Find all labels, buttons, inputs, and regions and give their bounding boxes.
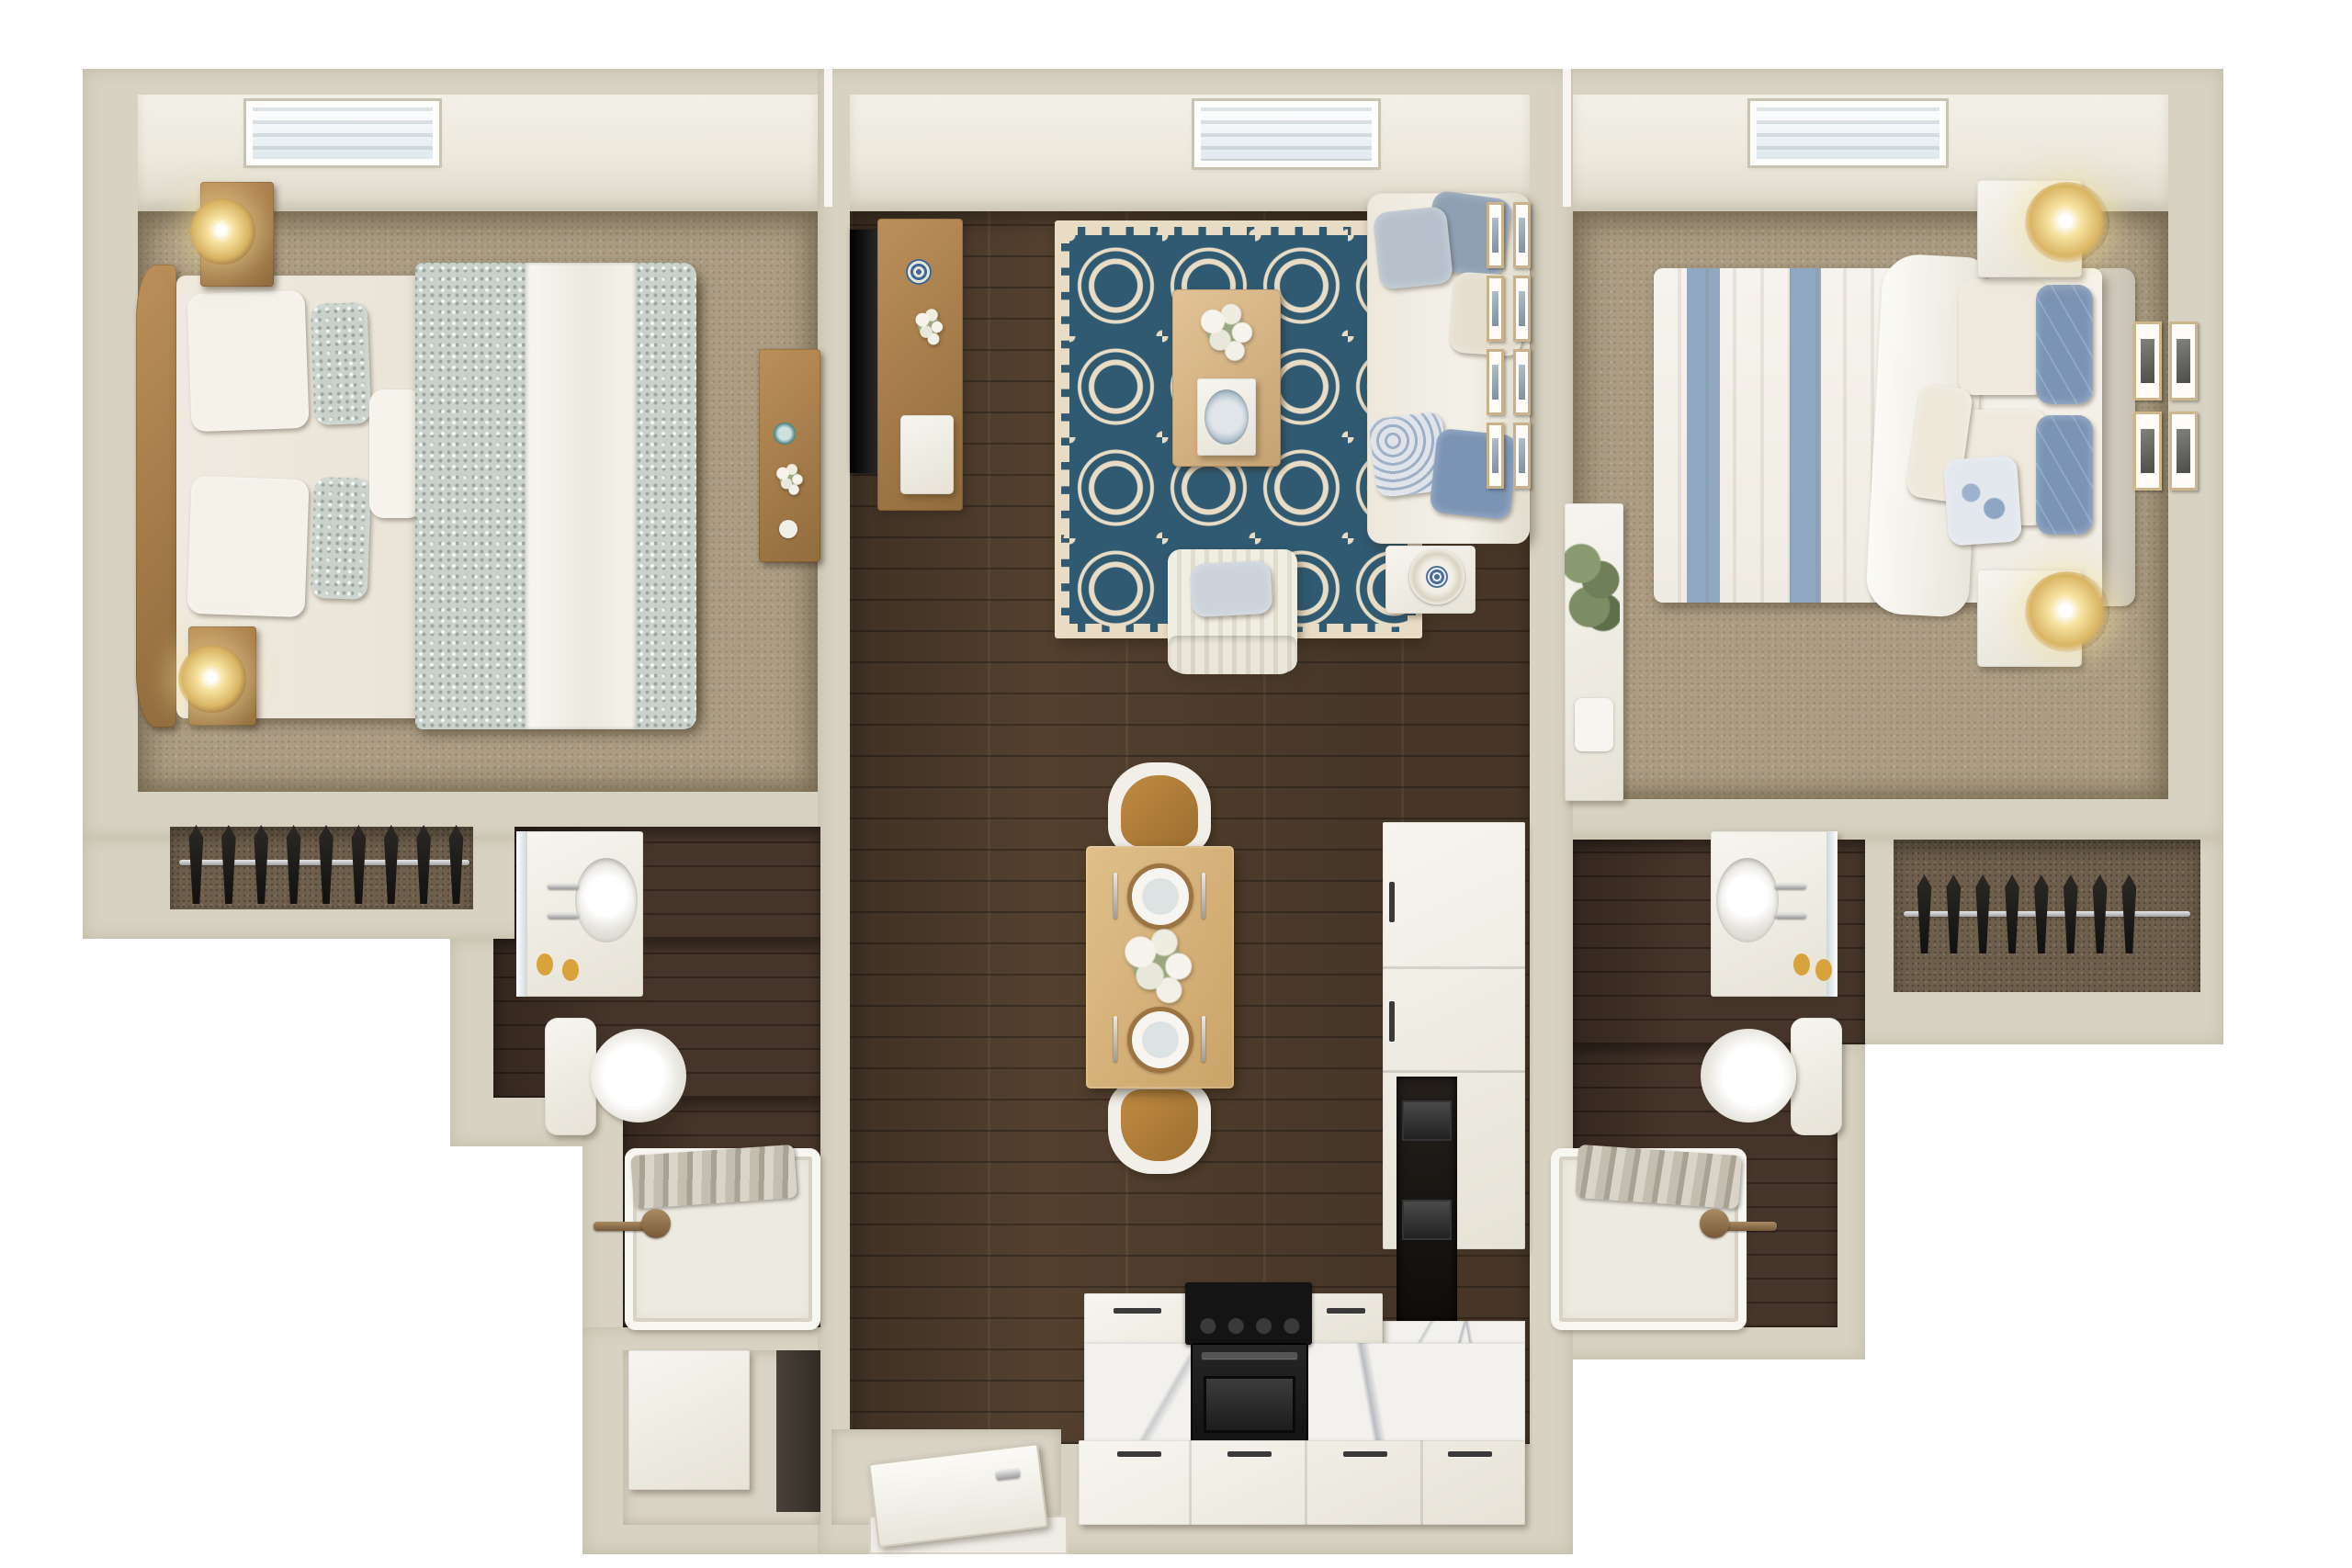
pillow-accent — [2036, 285, 2093, 404]
decor-tray — [900, 415, 954, 494]
dining-chair-seat — [1121, 775, 1198, 847]
pantry-seam — [1383, 966, 1525, 969]
decor-dish — [779, 520, 797, 538]
cabinet-handle-icon — [1389, 1001, 1395, 1042]
counter-seam — [1305, 1440, 1307, 1525]
headboard-left-bed — [136, 265, 176, 728]
headboard-right-bed — [2097, 268, 2135, 606]
toilet-bowl — [1701, 1029, 1796, 1122]
garment-icon — [188, 825, 204, 904]
sink-icon — [1716, 858, 1779, 942]
storage-cabinet — [628, 1350, 750, 1490]
garment-icon — [416, 825, 432, 904]
plant-icon — [1565, 531, 1620, 639]
tray-deco — [1426, 566, 1448, 588]
decor-vase — [774, 423, 796, 445]
picture-frame — [2169, 412, 2198, 491]
dining-centerpiece — [1112, 919, 1207, 1014]
lamp-icon — [189, 198, 255, 265]
tub-faucet-icon — [641, 1209, 671, 1238]
closet-left-garments — [188, 825, 464, 909]
section-gap-right — [1563, 69, 1571, 207]
pillow-floral — [1943, 455, 2022, 546]
plate-inner — [1142, 878, 1179, 915]
plate-inner — [1142, 1021, 1179, 1058]
faucet-icon — [1775, 913, 1806, 919]
decor-orb — [906, 259, 932, 285]
floor-plan-render — [0, 0, 2352, 1568]
picture-frame — [1487, 276, 1504, 342]
closet-right-garments — [1917, 874, 2137, 959]
picture-frame — [2133, 321, 2162, 400]
sink-icon — [575, 858, 638, 942]
soap-icon — [537, 953, 553, 976]
tray-plate — [1204, 389, 1249, 445]
garment-icon — [254, 825, 269, 904]
cabinet-handle-icon — [1327, 1308, 1365, 1314]
garment-icon — [1946, 874, 1962, 953]
oven-handle-icon — [1202, 1352, 1297, 1359]
picture-frame — [2169, 321, 2198, 400]
cabinet-handle-icon — [1227, 1451, 1272, 1457]
skylight-bedroom-left — [246, 101, 439, 165]
pillow-patterned — [311, 477, 372, 600]
cutlery-icon — [1202, 873, 1205, 919]
soap-icon — [1793, 953, 1810, 976]
soap-icon — [562, 959, 579, 981]
toilet-tank — [1791, 1018, 1842, 1135]
cabinet-handle-icon — [1389, 882, 1395, 922]
blanket-fold — [526, 263, 636, 729]
picture-frame — [1513, 423, 1531, 489]
living-gallery-frames — [1487, 202, 1531, 494]
garment-icon — [383, 825, 399, 904]
section-gap-left — [824, 69, 832, 207]
garment-icon — [319, 825, 334, 904]
oven-glass — [1402, 1100, 1452, 1141]
range-oven-window — [1204, 1376, 1295, 1433]
picture-frame — [1513, 349, 1531, 415]
desk-decor — [1575, 698, 1613, 751]
cabinet-handle-icon — [1114, 1308, 1161, 1314]
pillow-accent — [2036, 415, 2093, 535]
cabinet-handle-icon — [1343, 1451, 1387, 1457]
storage-doorway-shadow — [776, 1350, 820, 1512]
picture-frame — [1487, 202, 1504, 268]
pillow — [1959, 279, 2047, 395]
garment-icon — [1917, 874, 1932, 953]
toilet-tank — [545, 1018, 596, 1135]
tub-faucet-icon — [1700, 1209, 1729, 1238]
armchair-back — [1168, 636, 1297, 674]
range-cooktop — [1185, 1282, 1312, 1345]
cutlery-icon — [1202, 1016, 1205, 1062]
counter-seam — [1420, 1440, 1423, 1525]
picture-frame — [2133, 412, 2162, 491]
counter-seam — [1189, 1440, 1192, 1525]
picture-frame — [1513, 202, 1531, 268]
coffee-table-flowers — [1191, 296, 1264, 369]
garment-icon — [2005, 874, 2020, 953]
oven-glass — [1402, 1200, 1452, 1240]
lamp-icon — [2025, 182, 2109, 263]
pillow — [187, 290, 309, 432]
pillow-patterned — [311, 302, 372, 425]
tv-icon — [850, 230, 879, 473]
decor-coral — [911, 303, 948, 351]
dining-chair-seat — [1121, 1089, 1198, 1161]
garment-icon — [351, 825, 367, 904]
armchair-pillow — [1190, 560, 1273, 618]
cutlery-icon — [1114, 1016, 1117, 1062]
faucet-icon — [1775, 884, 1806, 889]
skylight-bedroom-right — [1750, 101, 1946, 165]
faucet-icon — [548, 884, 579, 889]
pantry-seam — [1383, 1070, 1525, 1073]
garment-icon — [2033, 874, 2049, 953]
decor-flowers — [772, 459, 808, 500]
sofa-pillow — [1373, 206, 1453, 290]
bedroom-gallery-frames — [2133, 321, 2198, 491]
garment-icon — [220, 825, 236, 904]
skylight-living — [1194, 101, 1378, 167]
cabinet-handle-icon — [1117, 1451, 1161, 1457]
faucet-icon — [548, 913, 579, 919]
garment-icon — [2121, 874, 2137, 953]
lamp-icon — [2025, 571, 2109, 652]
pillow — [187, 476, 309, 617]
picture-frame — [1487, 423, 1504, 489]
garment-icon — [286, 825, 301, 904]
cutlery-icon — [1114, 873, 1117, 919]
towel-rack — [1575, 1145, 1742, 1209]
picture-frame — [1513, 276, 1531, 342]
soap-icon — [1815, 959, 1832, 981]
cabinet-handle-icon — [1448, 1451, 1492, 1457]
towel-rack — [630, 1145, 797, 1209]
garment-icon — [1975, 874, 1991, 953]
vanity-mirror — [516, 831, 527, 997]
picture-frame — [1487, 349, 1504, 415]
garment-icon — [448, 825, 464, 904]
garment-icon — [2092, 874, 2108, 953]
toilet-bowl — [591, 1029, 686, 1122]
garment-icon — [2063, 874, 2078, 953]
lamp-icon — [178, 645, 246, 713]
